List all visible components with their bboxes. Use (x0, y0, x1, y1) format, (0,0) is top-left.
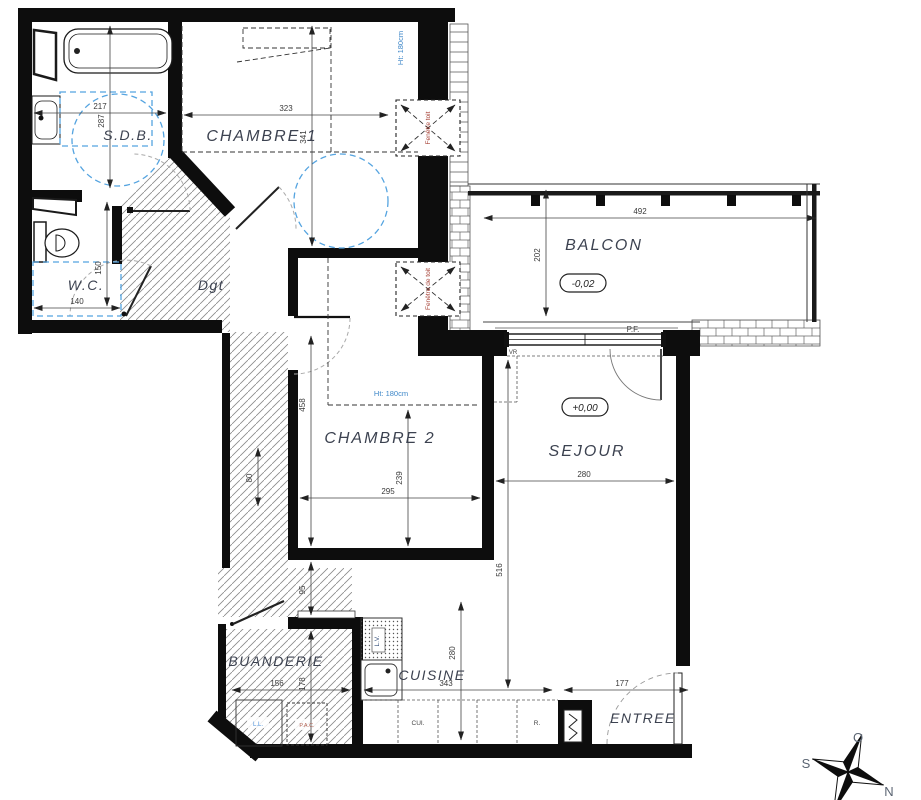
electrical-panel (564, 710, 582, 742)
compass-west: O (853, 730, 863, 745)
heatpump-label: P.A.C. (299, 723, 315, 729)
pf-label: P.F. (627, 325, 640, 334)
balcony-railing (468, 184, 820, 322)
roof-edge-band (450, 24, 820, 346)
dim-buanderie-width: 156 (270, 679, 284, 688)
toilet (34, 222, 79, 262)
compass-south: S (802, 756, 811, 771)
room-label-buanderie: BUANDERIE (228, 653, 323, 669)
floor-plan-page: 217 287 323 341 140 150 492 202 295 239 … (0, 0, 921, 800)
dim-strip-458: 458 (298, 398, 307, 412)
dim-strip-178: 178 (298, 677, 307, 691)
dim-balcon-height: 202 (533, 248, 542, 262)
porte-fenetre (494, 328, 678, 402)
dim-wc-width: 140 (70, 297, 84, 306)
room-label-sejour: SEJOUR (549, 443, 626, 460)
room-label-entree: ENTREE (610, 710, 676, 726)
height-note-chambre2: Ht: 180cm (374, 389, 408, 398)
dim-entree-width: 177 (615, 679, 629, 688)
cooker-label: CUI. (412, 720, 425, 727)
level-sejour: +0,00 (572, 403, 598, 414)
dim-chambre1-width: 323 (279, 104, 293, 113)
roof-window-label-2: Fenêtre de toit (425, 268, 432, 310)
chambre1-door (236, 187, 296, 229)
vr-label: VR (509, 350, 518, 356)
height-note-chambre1: Ht: 180cm (396, 31, 405, 65)
roof-window-label-1: Fenêtre toit (425, 111, 432, 144)
duct-column (34, 30, 56, 80)
dim-strip-95: 95 (298, 585, 307, 594)
laundry-lintel (298, 611, 355, 618)
dim-sejour-height: 516 (495, 563, 504, 577)
wc-shelf (33, 198, 76, 215)
dim-strip-80: 80 (245, 473, 254, 482)
room-label-chambre1: CHAMBRE 1 (206, 128, 317, 145)
room-label-sdb: S.D.B. (103, 127, 152, 143)
kitchen-counter (362, 700, 558, 744)
chambre2-door (294, 317, 350, 374)
dim-sejour-width: 280 (577, 470, 591, 479)
dim-chambre2-height: 239 (395, 471, 404, 485)
dim-sdb-height: 287 (97, 114, 106, 128)
dim-wc-height: 150 (94, 261, 103, 275)
walls (18, 8, 700, 758)
room-label-chambre2: CHAMBRE 2 (324, 430, 435, 447)
compass-north: N (884, 784, 893, 799)
room-label-dgt: Dgt (198, 277, 224, 293)
dim-cuisine-height: 280 (448, 646, 457, 660)
dim-sdb-width: 217 (93, 102, 107, 111)
dim-balcon-width: 492 (633, 207, 647, 216)
dim-chambre2-width: 295 (381, 487, 395, 496)
kitchen-sink-unit (361, 618, 402, 700)
room-label-balcon: BALCON (565, 237, 643, 254)
dishwasher-label: L.V. (374, 635, 381, 646)
level-balcon: -0,02 (572, 279, 595, 290)
floor-plan-svg: 217 287 323 341 140 150 492 202 295 239 … (0, 0, 921, 800)
bathtub (64, 29, 172, 73)
fridge-label: R. (534, 720, 541, 727)
room-label-wc: W.C. (68, 277, 105, 293)
room-label-cuisine: CUISINE (398, 667, 465, 683)
washbasin (32, 96, 60, 144)
washer-label: L.L. (253, 722, 263, 728)
compass-rose: O S N (798, 721, 897, 800)
